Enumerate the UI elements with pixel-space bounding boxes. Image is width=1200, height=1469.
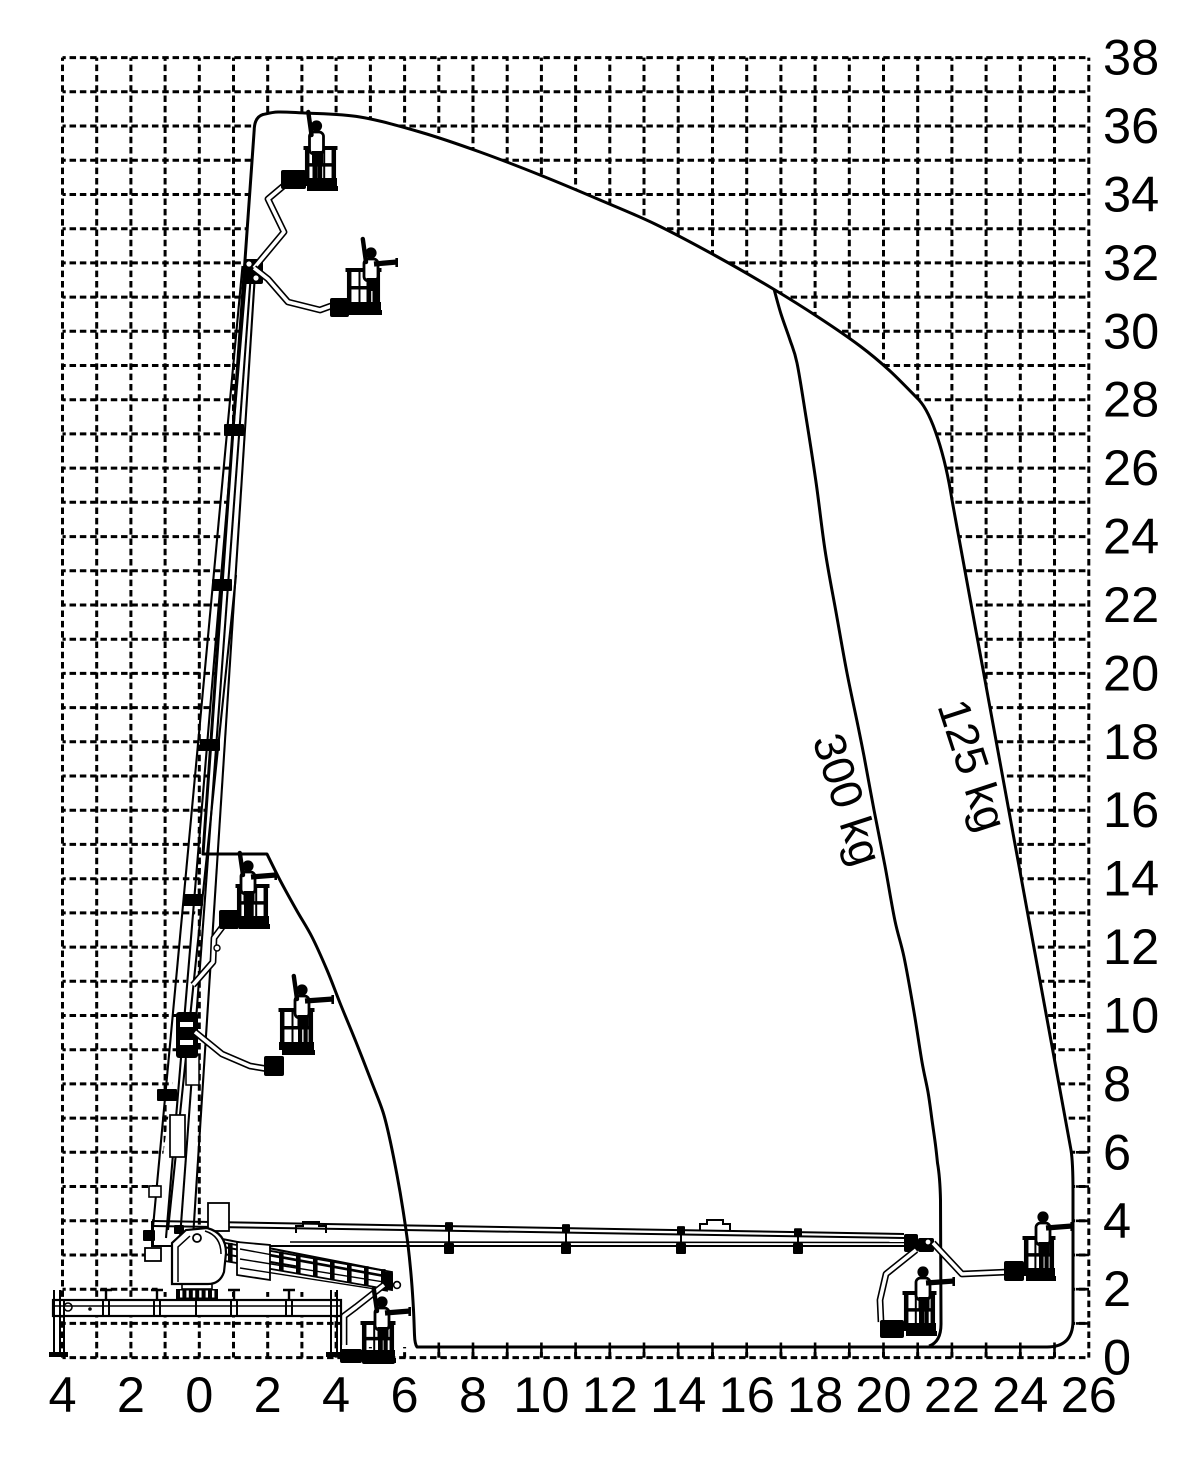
svg-text:10: 10 — [513, 1366, 569, 1423]
svg-text:0: 0 — [185, 1366, 213, 1423]
svg-text:24: 24 — [1103, 508, 1159, 565]
svg-text:22: 22 — [1103, 576, 1159, 633]
svg-text:32: 32 — [1103, 234, 1159, 291]
svg-text:4: 4 — [322, 1366, 350, 1423]
svg-text:20: 20 — [855, 1366, 911, 1423]
svg-text:8: 8 — [1103, 1055, 1131, 1112]
svg-text:34: 34 — [1103, 166, 1159, 223]
svg-text:28: 28 — [1103, 371, 1159, 428]
svg-text:22: 22 — [924, 1366, 980, 1423]
svg-text:2: 2 — [117, 1366, 145, 1423]
svg-text:18: 18 — [1103, 713, 1159, 770]
svg-text:10: 10 — [1103, 987, 1159, 1044]
svg-text:6: 6 — [1103, 1123, 1131, 1180]
svg-text:18: 18 — [787, 1366, 843, 1423]
svg-text:26: 26 — [1103, 439, 1159, 496]
svg-text:2: 2 — [254, 1366, 282, 1423]
svg-text:36: 36 — [1103, 97, 1159, 154]
svg-text:24: 24 — [992, 1366, 1048, 1423]
svg-text:4: 4 — [48, 1366, 76, 1423]
svg-text:14: 14 — [1103, 850, 1159, 907]
svg-text:12: 12 — [582, 1366, 638, 1423]
svg-text:16: 16 — [719, 1366, 775, 1423]
svg-text:16: 16 — [1103, 781, 1159, 838]
svg-text:0: 0 — [1103, 1329, 1131, 1386]
svg-text:20: 20 — [1103, 644, 1159, 701]
svg-text:8: 8 — [459, 1366, 487, 1423]
svg-text:38: 38 — [1103, 29, 1159, 86]
svg-text:2: 2 — [1103, 1260, 1131, 1317]
svg-text:14: 14 — [650, 1366, 706, 1423]
svg-text:12: 12 — [1103, 918, 1159, 975]
svg-text:4: 4 — [1103, 1192, 1131, 1249]
svg-text:30: 30 — [1103, 302, 1159, 359]
svg-text:6: 6 — [391, 1366, 419, 1423]
